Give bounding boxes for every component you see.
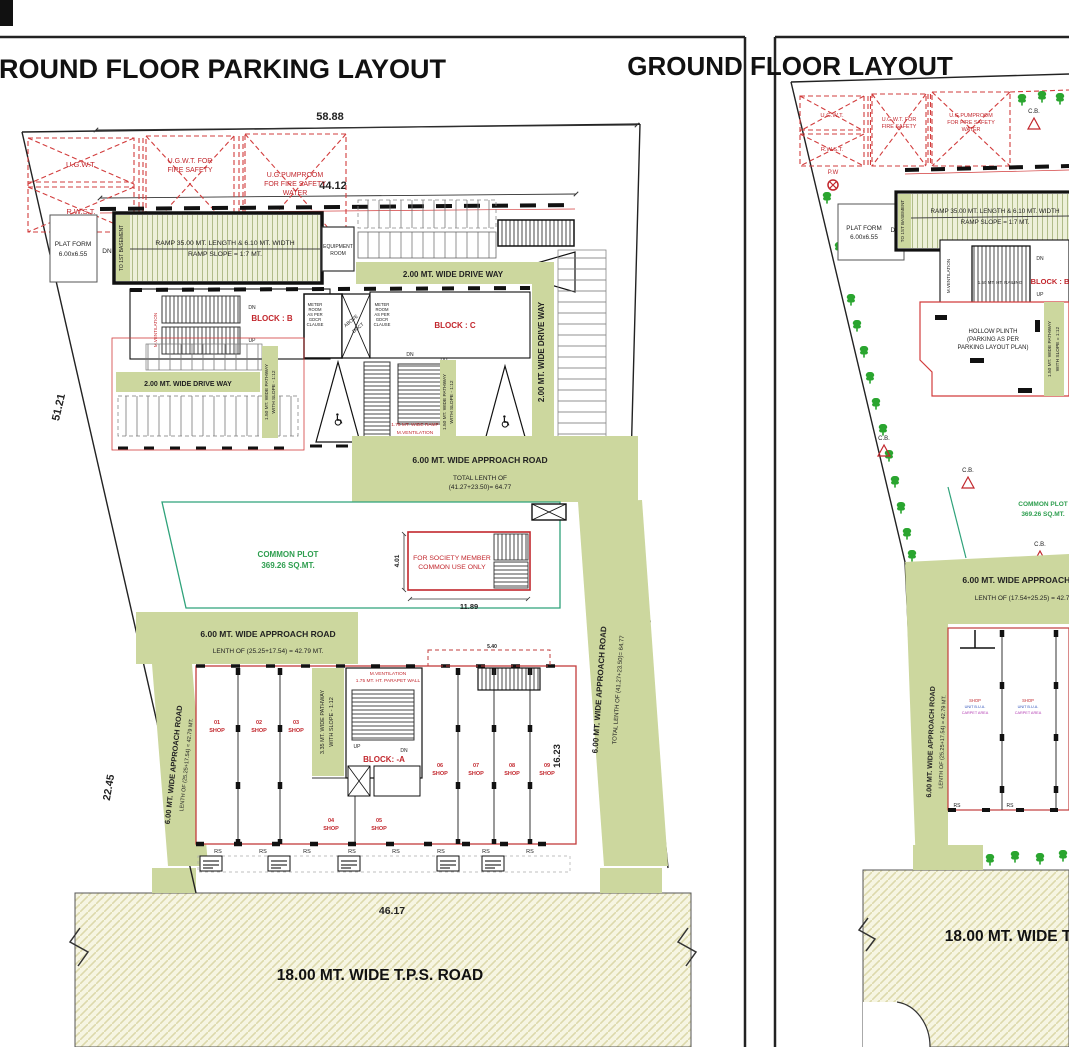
tank-ugwt-label: U.G.W.T. [66,160,96,169]
shop-02-label: SHOP [251,728,267,734]
dim-line-44 [100,194,576,198]
platform2-label-1: PLAT FORM [846,225,881,232]
dim-46: 46.17 [379,905,405,917]
hollow-label-3: PARKING LAYOUT PLAN) [957,345,1028,351]
approach-road-stub-right [600,868,662,893]
pw-marker-x [829,181,837,189]
stairs-b-dn: DN [248,305,256,311]
parking-stalls-mid-1 [146,344,262,370]
lift-box-2 [374,766,420,796]
stairs-mid [364,362,390,442]
block-b-label: BLOCK : B [251,314,293,323]
approach-top-label: 6.00 MT. WIDE APPROACH ROAD [412,455,547,465]
common2-label-1: COMMON PLOT [1018,501,1067,508]
pathway2-label-b: WITH SLOPE = 1:12 [1055,326,1061,371]
shop-05-label: SHOP [371,826,387,832]
road-label: 18.00 MT. WIDE T.P.S. ROAD [277,967,483,984]
shop-03-num: 03 [293,720,299,726]
pathway-150-2-label-a: 1.50 MT. WIDE PATHWAY [442,373,448,430]
rs2-label: RS [954,803,962,809]
rs-label: RS [303,849,311,855]
tank2-fire-2: FIRE SAFETY [882,124,917,130]
shop-07-label: SHOP [468,771,484,777]
ramp-triangle-2 [484,366,527,444]
pathway-335 [312,668,344,776]
shop-04-num: 04 [328,818,335,824]
corner-mark [0,0,13,26]
hollow-label-1: HOLLOW PLINTH [968,329,1017,335]
platform2-label-2: 6.00x6.55 [850,234,878,241]
pathway-335-label-b: WITH SLOPE - 1:12 [329,697,335,747]
ramp-hatch [130,215,320,281]
stairs-shops-top [478,668,540,690]
rs-label: RS [482,849,490,855]
stairs-c-dn: DN [406,352,414,358]
shop2-unit: UNIT B.U.A. [1018,705,1039,709]
tank-pump-label-2: FOR FIRE SAFETY [264,181,326,188]
parking-stalls-right [558,250,606,442]
pathway-150-1-label-b: WITH SLOPE - 1:12 [271,370,277,414]
ramp-175-label: 1.75 MT. WIDE RAMP [391,422,438,428]
platform-label-1: PLAT FORM [55,241,92,248]
wall2-top [905,166,1069,170]
society-label-2: COMMON USE ONLY [418,564,486,571]
approach-top-total-1: TOTAL LENTH OF [453,475,507,482]
society-label-1: FOR SOCIETY MEMBER [413,555,491,562]
tank2-rwst: R.W.S.T. [821,147,844,153]
mvent-label-1: M.VENTILATION [397,430,434,436]
society-stairs-1 [494,534,528,560]
shop-06-label: SHOP [432,771,448,777]
dim-1623: 16.23 [552,744,563,768]
tank2-pump-2: FOR FIRE SAFETY [947,120,995,126]
shop-08-num: 08 [509,763,515,769]
meter-b-5: CLAUSE [307,322,324,327]
dim-22: 22.45 [101,773,117,801]
shop-07-num: 07 [473,763,479,769]
mvent-label-2: M.VENTILATION [370,671,407,677]
hollow-label-2: (PARKING AS PER [967,337,1020,343]
parking-stalls-top-1 [358,200,496,228]
shop2-label: SHOP [1022,698,1034,703]
road-trees [986,850,1067,866]
meter-c-5: CLAUSE [374,322,391,327]
shop-02-num: 02 [256,720,262,726]
dn-label: DN [102,248,112,255]
shop2-carpet: CARPET AREA [962,711,989,715]
shop-03-label: SHOP [288,728,304,734]
stairs-a-dn: DN [400,748,408,754]
approach-road-band-right [578,500,668,866]
block-a-label: BLOCK: -A [363,755,405,764]
shop2-label: SHOP [969,698,981,703]
tank-fire-label-2: FIRE SAFETY [167,167,212,174]
platform-label-2: 6.00x6.55 [59,251,88,258]
equipment-label-2: ROOM [330,251,346,257]
mvent2-label: M.VENTILATION [946,259,951,293]
approach2-top-label: 6.00 MT. WIDE APPROACH ROAD [962,575,1069,585]
block2-b-label: BLOCK : B [1031,277,1069,286]
right-title: GROUND FLOOR LAYOUT [627,51,953,81]
dim-51: 51.21 [50,393,68,423]
basement2-label: TO 1ST BASEMENT [900,200,905,243]
stairs-a-up: UP [354,744,362,750]
tank2-pump-1: U.G.PUMPROOM [949,113,993,119]
approach2-top-lenth: LENTH OF (17.54+25.25) = 42.79 MT. [975,595,1069,602]
cb-triangle-icon [1028,118,1040,129]
stamp-boxes [200,856,504,871]
rs-label: RS [392,849,400,855]
cb-triangle-icon [962,477,974,488]
tank2-fire-1: U.G.W.T. FOR [882,117,917,123]
wall2-top-red [905,170,1069,174]
common-plot-label-1: COMMON PLOT [258,550,319,559]
road-label-2: 18.00 MT. WIDE T.P.S. ROAD [945,928,1069,945]
platform [50,215,97,282]
shop-09-label: SHOP [539,771,555,777]
pathway2-label-a: 1.50 MT. WIDE PATHWAY [1047,320,1053,377]
pathway-335-label-a: 3.35 MT. WIDE PATHWAY [320,690,326,755]
tank-fire-label-1: U.G.W.T. FOR [168,158,213,165]
shop-06-num: 06 [437,763,443,769]
driveway-left-label: 2.00 MT. WIDE DRIVE WAY [144,381,232,388]
block-c-label: BLOCK : C [434,321,476,330]
stairs2-dn: DN [1036,256,1044,262]
stairs2-up: UP [1037,292,1045,298]
basement-label: TO 1ST BASEMENT [119,225,125,271]
shop2-unit: UNIT B.U.A. [965,705,986,709]
shop-08-label: SHOP [504,771,520,777]
rs-label: RS [526,849,534,855]
left-panel: GROUND FLOOR PARKING LAYOUT 46.17 18.00 … [0,0,745,1047]
shop-04-label: SHOP [323,826,339,832]
drawing-sheet: GROUND FLOOR PARKING LAYOUT 46.17 18.00 … [0,0,1069,1047]
ramp-label-1: RAMP 35.00 MT. LENGTH & 6.10 MT. WIDTH [155,240,294,247]
pathway-150-2-label-b: WITH SLOPE - 1:12 [449,380,455,424]
dim-line-58 [96,125,637,130]
rs-label: RS [437,849,445,855]
pw-label: P.W [828,170,839,176]
cb-label: C.B. [1034,542,1046,548]
approach-top-total-2: (41.27+23.50)= 64.77 [449,484,512,491]
ramp2-label-2: RAMP SLOPE = 1:7 MT. [961,219,1030,226]
shop-01-num: 01 [214,720,220,726]
rs-row: RS RS RS RS RS RS RS RS [214,849,534,855]
stairs-a [352,690,414,740]
rs-label: RS [348,849,356,855]
shop-09-num: 09 [544,763,550,769]
stairs2-b [972,246,1030,304]
dim-401: 4.01 [394,554,401,567]
equipment-label-1: EQUIPMENT [323,244,353,250]
ramp-label-2: RAMP SLOPE = 1:7 MT. [188,251,262,258]
tank-pump-label-3: WATER [283,190,308,197]
approach2-band-bottom [948,845,983,868]
shops-block-2 [948,628,1069,810]
dim-540: 5.40 [487,644,497,650]
tank-pump-label-1: U.G.PUMPROOM [267,172,324,179]
tank2-ugwt: U.G.W.T. [820,113,844,119]
plan-canvas: GROUND FLOOR PARKING LAYOUT 46.17 18.00 … [0,0,1069,1047]
rs2-label: RS [1007,803,1015,809]
common-plot-label-2: 369.26 SQ.MT. [261,561,314,570]
stairs-b-upper [162,296,240,323]
common-plot-edge-2 [948,487,966,558]
cb-label: C.B. [1028,109,1040,115]
parapet-label: 1.75 MT. HT. PARAPET WALL [356,678,421,684]
dim-1189: 11.89 [460,602,478,611]
rs-label: RS [259,849,267,855]
parking-dashed-strip [198,856,570,872]
mvent-left-label: M.VENTILATION [153,313,158,347]
stairs-topright [498,220,574,246]
panel-gutter [747,39,774,1047]
approach-mid-label: 6.00 MT. WIDE APPROACH ROAD [200,629,335,639]
ramp-triangle-1 [316,362,360,442]
shop-01-label: SHOP [209,728,225,734]
parking-stalls-top-2 [358,232,496,258]
terrace-dashed [428,650,550,666]
cb-label: C.B. [962,468,974,474]
pathway2-strip [1044,302,1064,396]
stairs-b-up: UP [249,338,257,344]
rs-label: RS [214,849,222,855]
cb-label: C.B. [878,436,890,442]
tank2-pump-3: WATER [962,127,981,133]
wall-top [100,205,575,209]
pathway-150-1-label-a: 1.50 MT. WIDE PATHWAY [264,363,270,420]
approach-mid-lenth: LENTH OF (25.25+17.54) = 42.79 MT. [213,648,324,655]
shop-05-num: 05 [376,818,382,824]
common2-label-2: 369.26 SQ.MT. [1021,511,1065,518]
driveway-top-label: 2.00 MT. WIDE DRIVE WAY [403,270,504,279]
boundary-trees [847,294,916,562]
railing-label: 1.50 MT. HT. RAILING [978,280,1023,285]
approach-road-band-top [352,436,638,502]
ramp2-label-1: RAMP 35.00 MT. LENGTH & 6.10 MT. WIDTH [931,208,1060,215]
driveway-right-label: 2.00 MT. WIDE DRIVE WAY [537,301,546,402]
approach-road-stub-left [152,868,196,893]
society-stairs-2 [494,562,528,588]
shop2-carpet: CARPET AREA [1015,711,1042,715]
dim-58: 58.88 [316,111,344,123]
left-title: GROUND FLOOR PARKING LAYOUT [0,54,447,84]
right-panel: GROUND FLOOR LAYOUT 18.00 MT. WIDE T.P.S… [627,37,1069,1047]
